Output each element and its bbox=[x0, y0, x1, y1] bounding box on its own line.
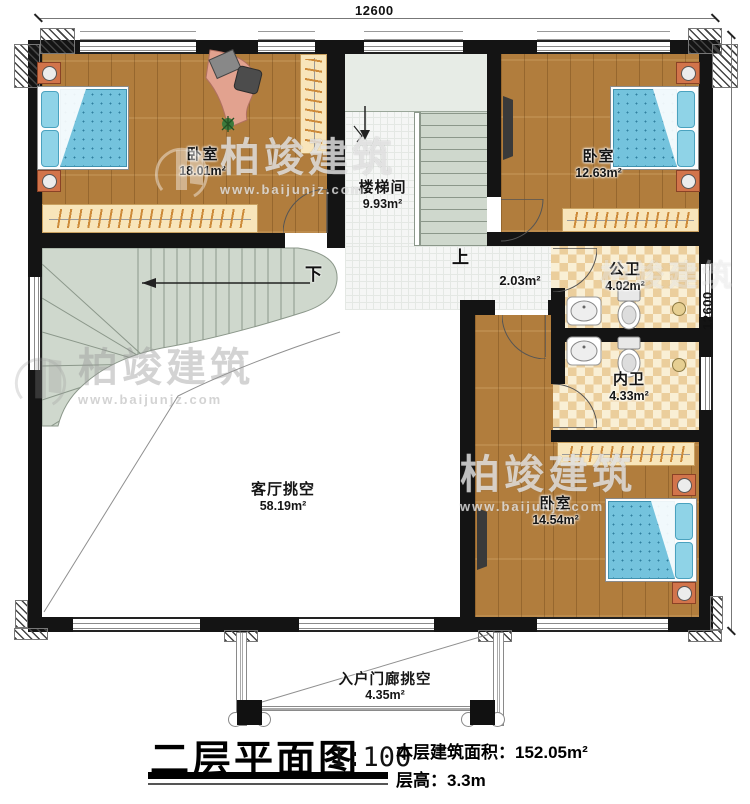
bedroom1-nightstand-bottom bbox=[37, 170, 61, 192]
bedroom2-nightstand-bottom bbox=[676, 170, 700, 192]
stair-rail bbox=[414, 112, 420, 246]
bedroom3-nook-floor bbox=[475, 315, 553, 617]
wall-right bbox=[699, 54, 713, 632]
wall-bedroom1-right bbox=[327, 54, 345, 248]
desk-chair bbox=[233, 65, 262, 94]
bedroom2-nightstand-top bbox=[676, 62, 700, 84]
bedroom1-nightstand-top bbox=[37, 62, 61, 84]
hatch-bottom-left-a bbox=[14, 628, 48, 640]
bedroom1-closet-right bbox=[300, 54, 327, 154]
hatch-top-left-a bbox=[40, 28, 75, 54]
bedroom2-closet bbox=[562, 208, 699, 232]
dim-value-right: 12600 bbox=[700, 291, 715, 330]
dim-line-right bbox=[731, 35, 732, 632]
window-top-1 bbox=[80, 40, 196, 54]
window-top-3 bbox=[364, 40, 463, 54]
title-underline-thin bbox=[148, 783, 388, 785]
bedroom2-tv bbox=[503, 96, 513, 160]
public-bath-sink bbox=[566, 296, 602, 326]
bedroom1-door-arc bbox=[283, 189, 329, 235]
label-bedroom1: 卧室18.01m² bbox=[140, 147, 265, 178]
wall-bedroom1-bottom-b bbox=[327, 233, 345, 248]
bedroom3-door-arc bbox=[502, 315, 546, 359]
label-private-bath: 内卫4.33m² bbox=[579, 372, 679, 403]
public-bath-toilet bbox=[614, 288, 644, 332]
label-porch-void: 入户门廊挑空4.35m² bbox=[310, 672, 460, 702]
bedroom3-bed bbox=[605, 498, 697, 582]
bedroom3-nightstand-top bbox=[672, 474, 696, 496]
sill-top-4 bbox=[537, 31, 670, 40]
sill-top-1 bbox=[80, 31, 196, 40]
floor-area-info: 本层建筑面积：152.05m² bbox=[396, 738, 588, 763]
bedroom1-closet-bottom bbox=[42, 204, 258, 233]
watermark-logo bbox=[392, 455, 452, 521]
public-bath-drain bbox=[672, 302, 686, 316]
private-bath-sink bbox=[566, 336, 602, 366]
label-public-bath: 公卫4.02m² bbox=[575, 262, 675, 293]
porch-slab-line bbox=[247, 706, 493, 711]
hatch-bottom-right-b bbox=[710, 596, 723, 630]
stair-break-arrow bbox=[352, 106, 378, 148]
window-left-1 bbox=[28, 277, 42, 370]
stair-flight-up bbox=[420, 112, 487, 246]
bedroom2-door-arc bbox=[501, 199, 545, 243]
stair-landing bbox=[345, 54, 487, 112]
wall-bath-bottom bbox=[551, 430, 713, 442]
curved-stair bbox=[42, 246, 362, 626]
bedroom1-bed bbox=[37, 86, 129, 170]
bedroom3-closet bbox=[557, 442, 695, 466]
bedroom3-tv bbox=[477, 508, 487, 570]
bedroom1-desk bbox=[198, 48, 270, 140]
label-stairwell: 楼梯间9.93m² bbox=[330, 180, 435, 211]
sill-top-3 bbox=[364, 31, 463, 40]
window-top-4 bbox=[537, 40, 670, 54]
dim-line-top bbox=[38, 18, 716, 19]
wall-bedroom1-bottom-a bbox=[28, 233, 285, 248]
window-right-2 bbox=[699, 357, 713, 410]
label-bedroom2: 卧室12.63m² bbox=[536, 149, 661, 180]
label-corridor-area: 2.03m² bbox=[488, 274, 552, 289]
hatch-bottom-left-b bbox=[15, 600, 28, 628]
wall-bedroom3-top-b bbox=[548, 300, 565, 315]
floor-plan-canvas: 卧室18.01m² 楼梯间9.93m² 卧室12.63m² 公卫4.02m² 内… bbox=[0, 0, 750, 804]
hatch-top-right-b bbox=[712, 44, 738, 88]
wall-bedroom3-left bbox=[460, 300, 475, 632]
label-stair-down: 下 bbox=[305, 260, 322, 285]
window-bottom-3 bbox=[537, 617, 668, 632]
wall-bedroom2-left bbox=[487, 54, 501, 197]
title-underline-thick bbox=[148, 772, 388, 779]
label-stair-up: 上 bbox=[452, 243, 469, 268]
bedroom3-nightstand-bottom bbox=[672, 582, 696, 604]
window-bottom-1 bbox=[73, 617, 200, 632]
floor-height-info: 层高：3.3m bbox=[396, 766, 486, 791]
wall-bedroom3-top-a bbox=[460, 300, 495, 315]
sill-top-2 bbox=[258, 31, 315, 40]
label-bedroom3: 卧室14.54m² bbox=[493, 496, 618, 527]
dim-value-top: 12600 bbox=[355, 3, 394, 18]
label-living-void: 客厅挑空58.19m² bbox=[218, 482, 348, 513]
hatch-bottom-right-a bbox=[688, 630, 722, 642]
private-bath-drain bbox=[672, 358, 686, 372]
